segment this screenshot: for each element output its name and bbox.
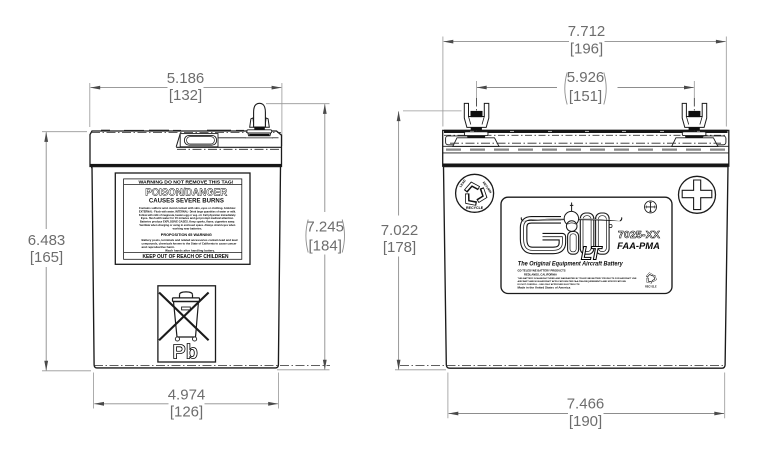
- svg-text:working near batteries.: working near batteries.: [172, 226, 203, 230]
- svg-text:RECYCLE: RECYCLE: [645, 286, 657, 289]
- svg-text:Batteries produce EXPLOSIVE GA: Batteries produce EXPLOSIVE GASES. Keep …: [140, 220, 235, 224]
- svg-text:Made in the United States of A: Made in the United States of America: [518, 286, 571, 290]
- svg-text:[151]: [151]: [569, 88, 602, 105]
- svg-text:REDLANDS, CALIFORNIA: REDLANDS, CALIFORNIA: [524, 272, 557, 276]
- svg-text:Wash hands after handling batt: Wash hands after handling battery.: [165, 249, 215, 253]
- svg-text:5.926: 5.926: [567, 69, 605, 86]
- svg-text:EXTERNAL- Flush with water. I: EXTERNAL- Flush with water. INTERNAL- Dr…: [139, 209, 236, 213]
- svg-text:[184]: [184]: [309, 238, 342, 255]
- svg-text:[190]: [190]: [569, 413, 602, 430]
- svg-text:PROPOSITION 65 WARNING: PROPOSITION 65 WARNING: [161, 233, 212, 237]
- svg-text:WARNING DO NOT REMOVE THIS TAG: WARNING DO NOT REMOVE THIS TAG!: [139, 179, 235, 184]
- svg-text:7.466: 7.466: [567, 396, 605, 413]
- svg-text:Follow with milk of magnesia,: Follow with milk of magnesia, beaten egg…: [139, 213, 236, 217]
- svg-text:THIS BATTERY IS MANUFACTURED A: THIS BATTERY IS MANUFACTURED AND WARRANT…: [518, 277, 637, 280]
- svg-text:[165]: [165]: [30, 249, 63, 266]
- svg-text:[178]: [178]: [383, 239, 416, 256]
- svg-text:7.022: 7.022: [381, 222, 419, 239]
- svg-text:[126]: [126]: [170, 403, 203, 420]
- svg-text:Ventilate when charging or usi: Ventilate when charging or using in encl…: [139, 223, 235, 227]
- svg-text:6.483: 6.483: [28, 232, 66, 249]
- svg-text:CAUSES SEVERE BURNS: CAUSES SEVERE BURNS: [149, 198, 225, 205]
- svg-text:[132]: [132]: [169, 87, 202, 104]
- svg-text:[196]: [196]: [570, 40, 603, 57]
- svg-text:The Original Equipment Aircraf: The Original Equipment Aircraft Battery: [518, 261, 623, 268]
- svg-text:AIRCRAFT AND NON-AIRCRAFT APPL: AIRCRAFT AND NON-AIRCRAFT APPLICATIONS P…: [518, 280, 627, 283]
- svg-text:GD TELEDYNE BATTERY PRODUCTS: GD TELEDYNE BATTERY PRODUCTS: [518, 269, 566, 273]
- svg-text:7.712: 7.712: [568, 23, 606, 40]
- svg-text:Eyes- flush with water for 15: Eyes- flush with water for 15 minutes an…: [141, 216, 234, 220]
- svg-text:Contains sulfuric acid. Avoid: Contains sulfuric acid. Avoid contact wi…: [139, 206, 236, 210]
- svg-text:Pb: Pb: [172, 342, 198, 364]
- svg-text:RECYCLE: RECYCLE: [466, 206, 484, 210]
- svg-text:5.186: 5.186: [167, 70, 205, 87]
- svg-text:FAA-PMA: FAA-PMA: [617, 240, 660, 251]
- svg-text:4.974: 4.974: [168, 386, 206, 403]
- svg-text:7.245: 7.245: [306, 219, 344, 236]
- svg-text:KEEP OUT OF REACH OF CHILDREN: KEEP OUT OF REACH OF CHILDREN: [143, 254, 229, 260]
